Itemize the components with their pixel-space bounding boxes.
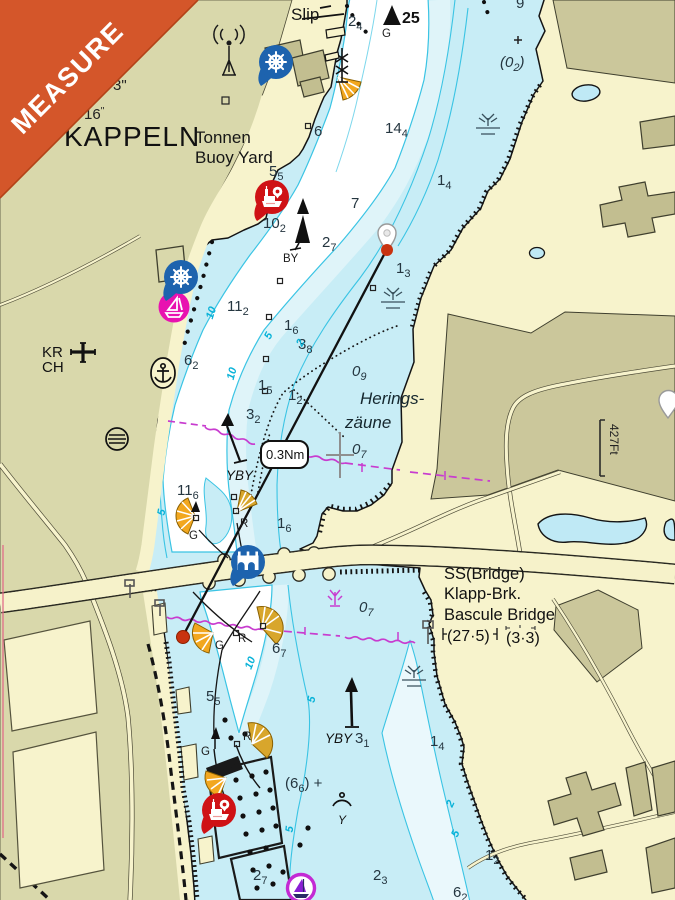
svg-text:427Ft: 427Ft (607, 424, 621, 455)
svg-text:(3·3): (3·3) (506, 630, 540, 647)
svg-text:25: 25 (402, 10, 420, 27)
svg-text:YBY: YBY (325, 731, 353, 746)
svg-text:0.3Nm: 0.3Nm (266, 447, 304, 462)
svg-text:G: G (189, 530, 198, 542)
svg-text:7: 7 (351, 195, 359, 212)
svg-text:R: R (240, 518, 248, 530)
svg-text:Tonnen: Tonnen (195, 128, 251, 147)
svg-text:Buoy Yard: Buoy Yard (195, 148, 273, 167)
svg-text:6: 6 (314, 123, 322, 140)
svg-text:R: R (238, 633, 246, 645)
svg-text:YBY: YBY (226, 468, 254, 483)
svg-text:R: R (243, 731, 251, 743)
svg-text:G: G (215, 640, 224, 652)
svg-text:BY: BY (283, 253, 299, 265)
svg-text:Y: Y (338, 813, 347, 827)
svg-text:Slip: Slip (291, 5, 319, 24)
svg-text:(27·5): (27·5) (447, 628, 490, 645)
svg-text:SS(Bridge): SS(Bridge) (444, 565, 525, 583)
svg-text:G: G (201, 746, 210, 758)
svg-text:Bascule Bridge: Bascule Bridge (444, 606, 555, 624)
svg-text:9: 9 (516, 0, 524, 12)
svg-text:zäune: zäune (344, 413, 391, 432)
svg-text:Herings-: Herings- (360, 389, 425, 408)
svg-text:CH: CH (42, 359, 64, 376)
svg-text:Klapp-Brk.: Klapp-Brk. (444, 585, 521, 603)
svg-text:G: G (382, 28, 391, 40)
svg-text:KAPPELN: KAPPELN (64, 121, 200, 152)
